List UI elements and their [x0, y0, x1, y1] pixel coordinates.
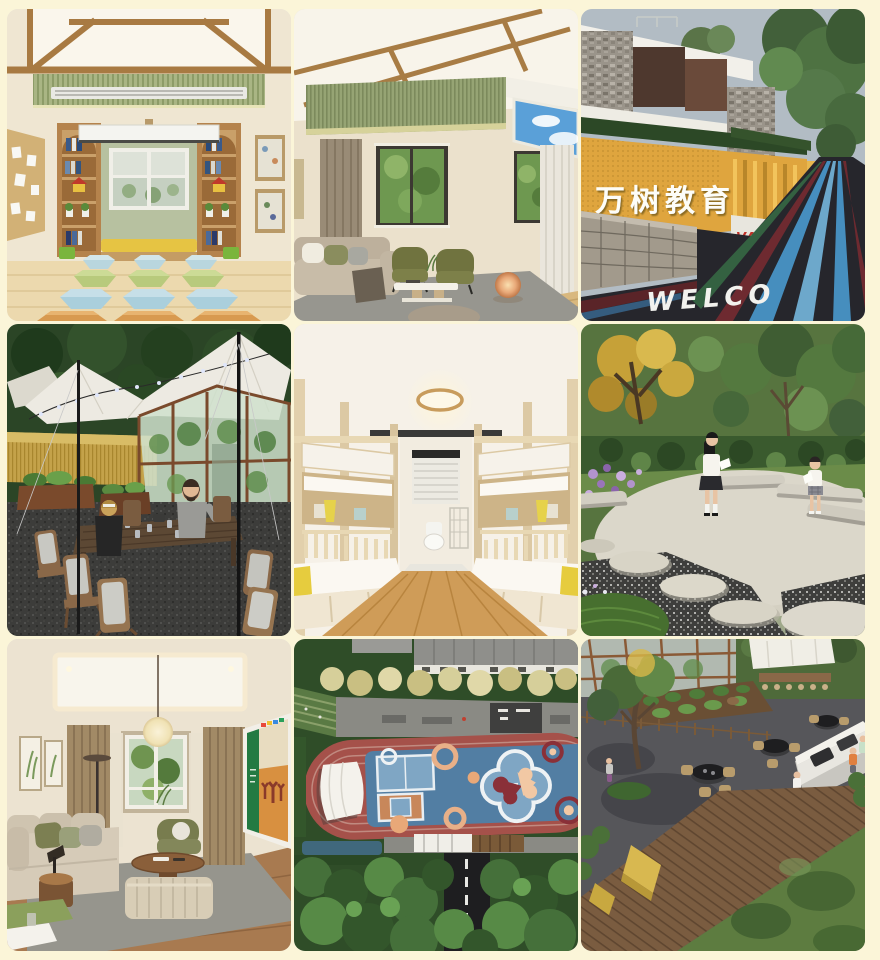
gallery-image-dormitory[interactable]: [294, 324, 578, 636]
window: [109, 148, 189, 210]
bbq-scene: [581, 639, 865, 951]
gallery-image-tent-dining[interactable]: [7, 324, 291, 636]
display-screen: [243, 713, 291, 849]
ceiling-cove: [55, 655, 245, 709]
tent-scene: [7, 324, 291, 636]
ottoman: [125, 877, 213, 919]
gallery-image-aerial-bbq[interactable]: [581, 639, 865, 951]
garden-scene: [581, 324, 865, 636]
curtain-right: [203, 727, 245, 865]
lounge-scene: [7, 639, 291, 951]
page: { "page": { "background": "#fbf5d8" }, "…: [0, 0, 880, 960]
sign-text: 万树教育: [595, 184, 735, 219]
upper-plaza: [336, 697, 578, 737]
window-bench: [101, 239, 197, 252]
track-canopy: [315, 761, 364, 825]
end-wall: [400, 437, 472, 574]
bookshelf-right: [197, 123, 241, 257]
gallery-image-aerial-playground[interactable]: [294, 639, 578, 951]
window-large: [374, 143, 450, 228]
wall-frames: [20, 737, 62, 790]
gallery-image-classroom[interactable]: [7, 9, 291, 321]
sofa: [294, 237, 400, 303]
gallery-image-lounge[interactable]: [7, 639, 291, 951]
dorm-scene: [294, 324, 578, 636]
gallery-image-garden-circle[interactable]: [581, 324, 865, 636]
ceiling-light: [418, 390, 462, 410]
playground-scene: [294, 639, 578, 951]
ac-vent: [51, 87, 247, 99]
bookshelf-left: [57, 123, 101, 257]
entrance-scene: 万树教育 VANSHU W: [581, 9, 865, 321]
running-track: [302, 731, 578, 841]
gallery-grid: 万树教育 VANSHU W: [7, 9, 865, 951]
gallery-image-lofted-living[interactable]: [294, 9, 578, 321]
living-room-scene: [294, 9, 578, 321]
classroom-scene: [7, 9, 291, 321]
projector-screen: [79, 125, 219, 141]
gallery-image-school-entrance[interactable]: 万树教育 VANSHU W: [581, 9, 865, 321]
